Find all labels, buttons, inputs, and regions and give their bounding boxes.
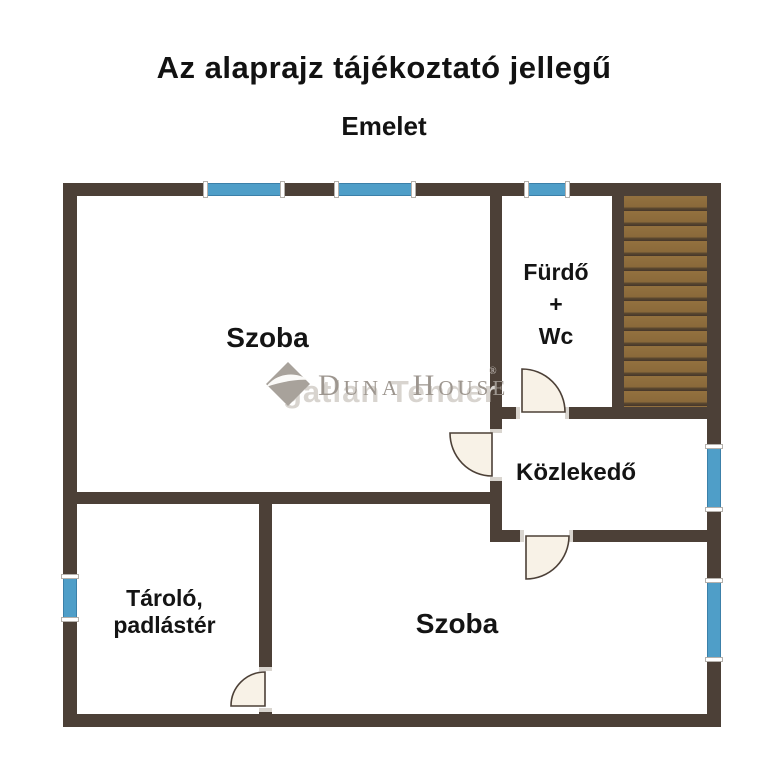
door-arc-kozlekedo-szoba (526, 536, 569, 579)
window-sill (203, 181, 208, 198)
window-sill (280, 181, 285, 198)
door-sill (259, 667, 272, 671)
door-opening-furdo (520, 407, 565, 419)
wall-outer-bottom (63, 714, 721, 727)
door-sill (490, 429, 502, 433)
room-label-kozlekedo: Közlekedő (506, 459, 646, 487)
window (207, 183, 281, 196)
door-sill (259, 708, 272, 712)
door-sill (565, 407, 569, 419)
window-sill (705, 507, 723, 512)
window-sill (705, 657, 723, 662)
door-sill (520, 530, 524, 542)
door-sill (569, 530, 573, 542)
door-arc-furdo (522, 369, 565, 412)
wall-furdo-stairs (612, 196, 624, 419)
window-sill (565, 181, 570, 198)
window (528, 183, 566, 196)
door-opening-tarolo (259, 671, 272, 708)
floor-plan-page: Az alaprajz tájékoztató jellegű Emelet (0, 0, 768, 768)
window-sill (411, 181, 416, 198)
room-label-furdo-line1: Fürdő (500, 256, 612, 288)
window-sill (705, 444, 723, 449)
window (707, 448, 721, 508)
room-label-furdo-wc: Fürdő + Wc (500, 256, 612, 352)
window (338, 183, 412, 196)
window-sill (61, 574, 79, 579)
page-subtitle: Emelet (0, 111, 768, 142)
door-opening-szoba-kozlekedo (490, 433, 502, 477)
door-arc-szoba-kozlekedo (450, 433, 492, 476)
door-sill (516, 407, 520, 419)
window (707, 582, 721, 658)
window-sill (334, 181, 339, 198)
room-label-szoba-bottom: Szoba (378, 608, 536, 640)
room-label-tarolo: Tároló, padlástér (72, 585, 257, 639)
door-sill (490, 477, 502, 481)
page-title: Az alaprajz tájékoztató jellegű (0, 50, 768, 86)
door-opening-kozlekedo-szoba (524, 530, 569, 542)
room-label-furdo-line2: + (500, 288, 612, 320)
wall-szoba-top-bottom (63, 492, 502, 504)
wall-szoba-furdo-kozlekedo (490, 196, 502, 542)
watermark-background-text: gatlan Tender (283, 374, 497, 410)
window-sill (705, 578, 723, 583)
staircase (624, 196, 707, 407)
wall-outer-left (63, 183, 77, 727)
watermark-brand-text: Duna House (318, 369, 509, 403)
room-label-szoba-top: Szoba (180, 322, 355, 354)
window-sill (524, 181, 529, 198)
diamond-swoosh-icon (264, 360, 312, 408)
room-label-furdo-line3: Wc (500, 320, 612, 352)
